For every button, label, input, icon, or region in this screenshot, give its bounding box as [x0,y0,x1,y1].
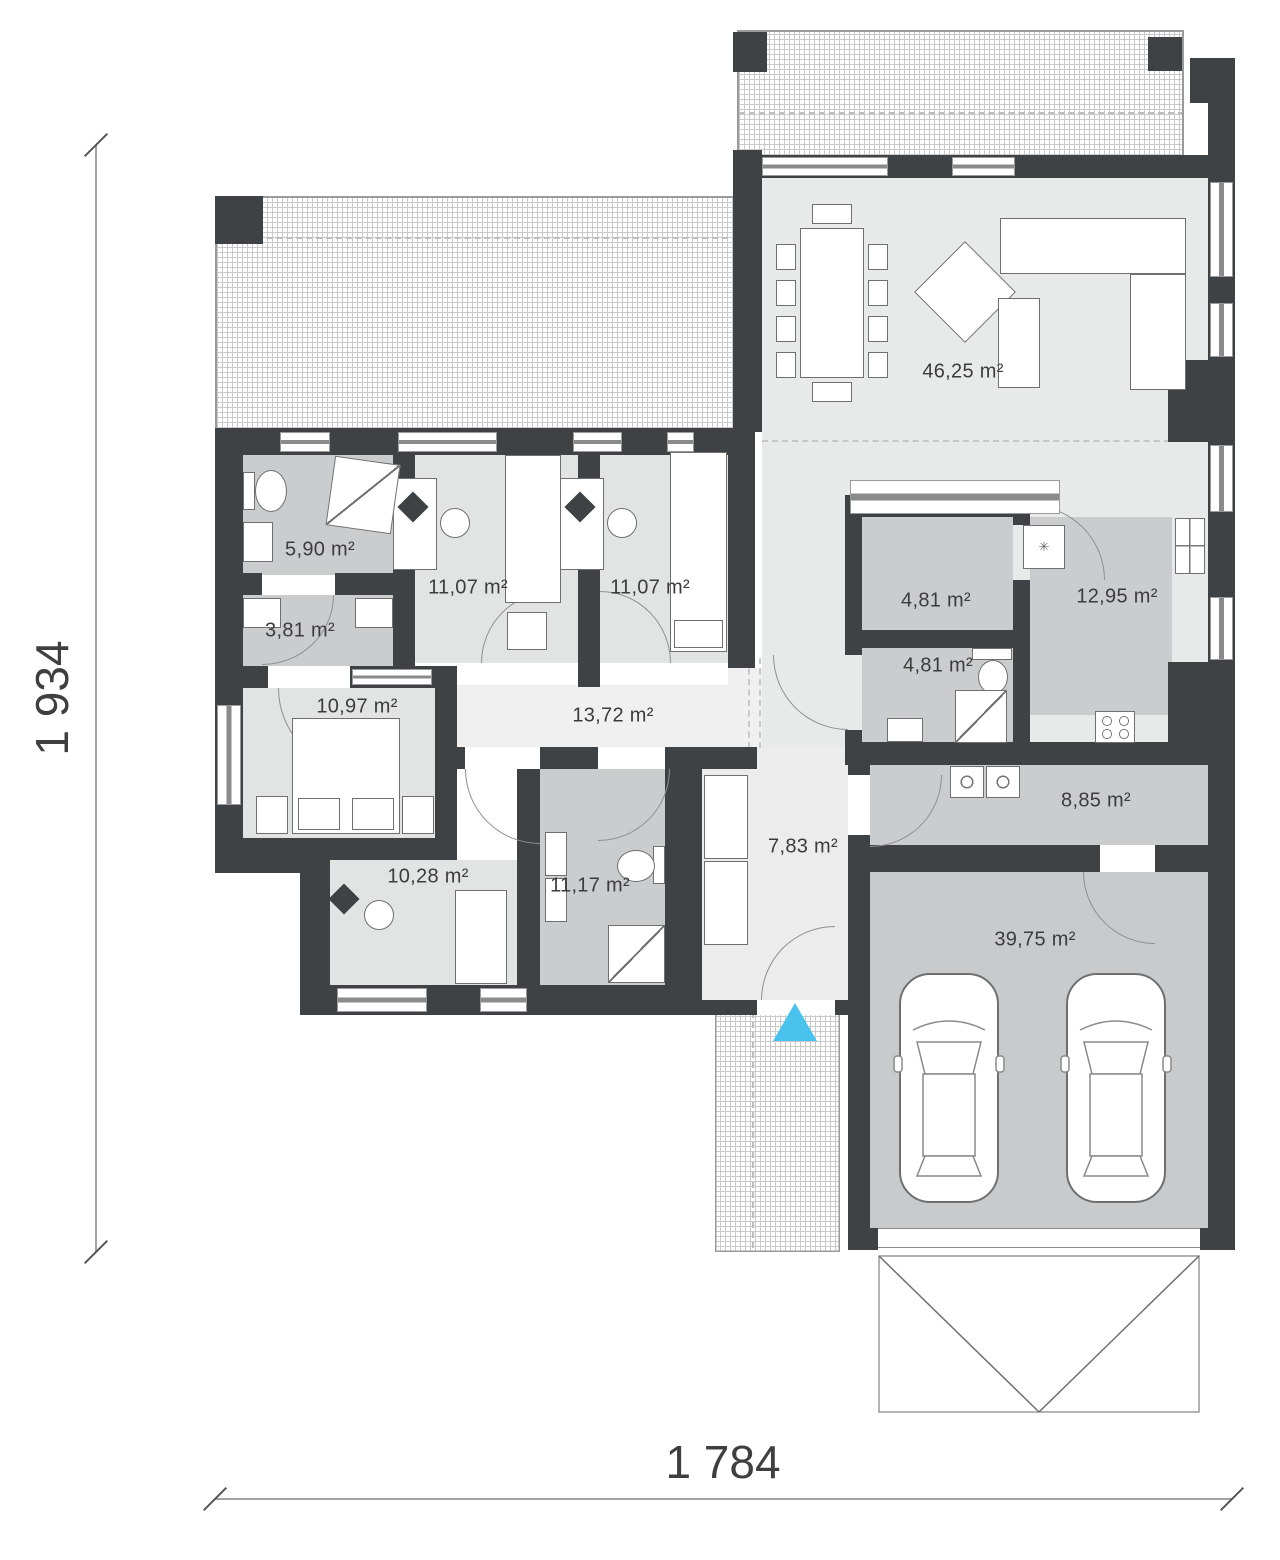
window [280,432,330,452]
window [217,705,241,805]
wall [702,1000,757,1015]
wall [1208,100,1235,155]
desk-chair [607,508,637,538]
garage-door [878,1228,1200,1248]
toilet-tank [972,648,1012,660]
terrace-left [217,198,738,428]
window [480,988,527,1012]
wall-corner [733,32,767,72]
wardrobe [704,861,748,945]
room-area-label-entry: 7,83 m² [768,836,838,859]
room-area-label-pantry: 4,81 m² [901,590,971,613]
room-area-label-garage: 39,75 m² [994,929,1075,952]
terrace-edge [1182,30,1184,157]
room-area-label-bedroom4: 10,28 m² [387,866,468,889]
dining-chair [776,316,796,342]
wall [435,666,457,860]
dining-chair [776,244,796,270]
pillow [352,798,394,830]
wall [848,835,870,1250]
room-area-label-bath2: 11,17 m² [550,875,630,898]
wall-corner [215,196,263,244]
window [1210,597,1233,660]
nightstand [256,796,288,834]
entry-walkway [715,1008,840,1252]
sink [243,522,273,562]
window [762,157,888,176]
shower [325,456,400,535]
shower [608,925,665,983]
wardrobe [704,775,748,859]
car-icon [893,968,1005,1208]
wall-corner [1148,37,1182,71]
pillow [298,798,340,830]
wall [457,747,465,769]
window [1210,303,1233,357]
room-area-label-closet: 3,81 m² [265,620,335,643]
room-area-label-bath1: 5,90 m² [285,539,355,562]
dining-chair [868,280,888,306]
dining-chair [812,204,852,224]
room-area-label-bedroom1: 11,07 m² [428,577,508,600]
wall [845,495,862,655]
window [573,432,622,452]
room-area-label-bedroom2: 11,07 m² [610,577,690,600]
washing-machine [950,766,984,798]
wall [1155,845,1235,872]
toilet [255,470,287,512]
window [952,157,1015,176]
wall [237,573,262,595]
desk [393,478,437,570]
dining-table [800,228,864,378]
pillow [674,620,723,648]
stove [1095,711,1135,743]
driveway [878,1250,1200,1414]
wall [1013,517,1030,525]
window [337,988,427,1012]
sink [887,718,923,742]
window [398,432,497,452]
open-plan-divider [762,440,1210,442]
toilet-tank [243,472,255,510]
dining-chair [812,382,852,402]
window [1210,182,1233,277]
shower [955,690,1007,743]
room-area-label-living: 46,25 m² [922,361,1003,384]
dining-chair [776,280,796,306]
room-area-label-bedroom3: 10,97 m² [316,696,397,719]
nightstand [402,796,434,834]
zone-divider [748,658,750,748]
window [1210,445,1233,512]
wall [1013,580,1030,745]
room-area-label-utility: 8,85 m² [1061,790,1131,813]
terrace-edge [737,30,1184,32]
terrace-edge [215,196,740,198]
desk [560,478,604,570]
shelf [355,598,393,628]
floor-plan: ✳ 46,25 m² 5,90 m² 3,81 m² 11,07 m² 11,0… [0,0,1280,1560]
wall [1200,1228,1235,1250]
bed [505,455,561,603]
nightstand [507,612,547,650]
dimension-label-height: 1 934 [25,640,79,755]
sideboard [850,480,1060,514]
shelf [545,832,567,876]
dishwasher-icon: ✳ [1039,539,1050,555]
dining-chair [868,244,888,270]
toilet [978,660,1008,694]
sofa [1130,274,1186,390]
room-area-label-bath3: 4,81 m² [903,655,973,678]
hallway-floor [757,747,848,769]
entrance-arrow-icon [773,1003,817,1041]
dimension-label-width: 1 784 [665,1435,780,1489]
terrace-top [739,32,1184,155]
hallway-floor [728,668,762,747]
zone-divider [759,658,761,748]
desk-chair [440,508,470,538]
roof-overhang-line [217,237,738,239]
radiator [352,669,432,685]
door-swing [465,769,540,844]
car-icon [1060,968,1172,1208]
wall [728,428,755,668]
wall [835,1000,849,1015]
wall [845,742,1235,765]
fridge [1175,518,1205,574]
wall [215,666,268,688]
bed [455,890,507,984]
dimension-line-vertical [95,145,97,1252]
wall [848,1228,878,1250]
wall [848,765,870,775]
wall [540,747,598,769]
dining-chair [868,316,888,342]
wall [330,838,457,860]
room-area-label-kitchen: 12,95 m² [1076,586,1157,609]
wall [1190,58,1235,103]
sofa [1000,218,1186,274]
wall [335,573,393,595]
wall [862,630,1013,648]
dimension-line-horizontal [215,1498,1232,1500]
wall [733,150,762,432]
pantry-floor [862,517,1013,630]
wall [702,747,757,769]
dining-chair [868,352,888,378]
ottoman [998,298,1040,388]
wall [665,747,702,1015]
dining-chair [776,352,796,378]
roof-overhang-line [739,112,1184,114]
desk-chair [364,900,394,930]
wall [870,845,1100,872]
room-area-label-hallway: 13,72 m² [572,705,653,728]
dryer [986,766,1020,798]
walkway-dashed-line [752,1012,754,1248]
window [667,432,694,452]
